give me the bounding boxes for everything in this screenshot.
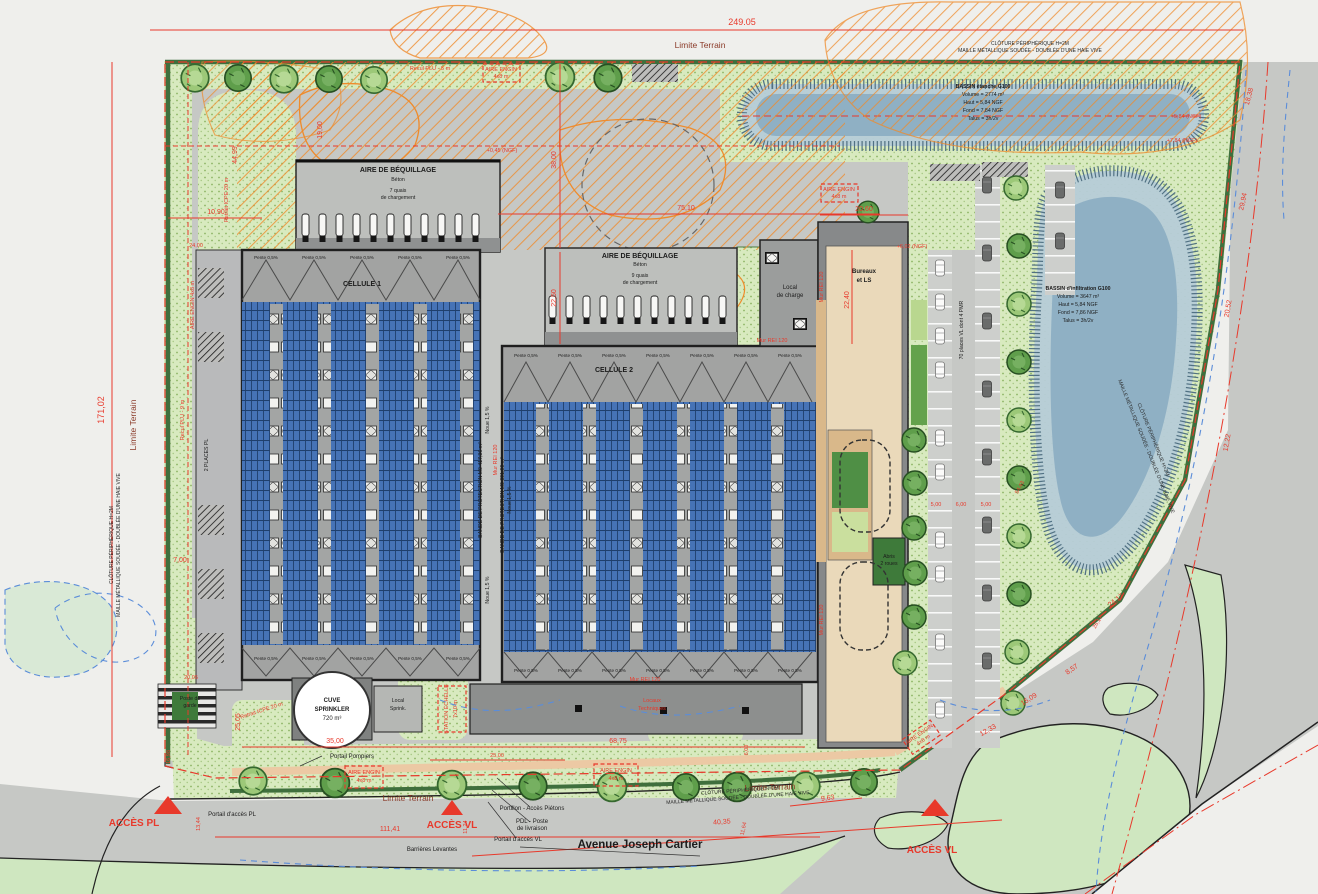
dim-20-05: 20,05 xyxy=(184,675,198,681)
aire-engin-l2: 4x8 m xyxy=(832,194,847,200)
pente: Pente 0,5% xyxy=(778,668,802,673)
cloture-top-l1: CLÔTURE PÉRIPHÉRIQUE H=2M xyxy=(991,40,1069,47)
west-dock-pad-2 xyxy=(198,332,224,362)
hatch-pad-n2 xyxy=(982,162,1028,177)
dock-door xyxy=(302,214,309,242)
cellule-1-walkway xyxy=(270,304,283,644)
aire-beq-2-title: AIRE DE BÉQUILLAGE xyxy=(602,251,679,260)
cloture-left-l1: CLÔTURE PÉRIPHÉRIQUE H=2M xyxy=(108,506,115,584)
bande-protection-2: BANDE DE PROTECTION M0 391,00 m² xyxy=(500,457,506,553)
car-icon xyxy=(983,313,992,329)
avenue-label: Avenue Joseph Cartier xyxy=(578,839,703,851)
pente: Pente 0,5% xyxy=(302,656,326,661)
skylight-icon xyxy=(793,318,807,330)
dock-door xyxy=(685,296,692,324)
west-dock-pad-3 xyxy=(198,505,224,535)
dock-door xyxy=(438,214,445,242)
mur-rei-2: Mur REI 120 xyxy=(819,605,825,636)
pente: Pente 0,5% xyxy=(514,353,538,358)
dim-44-99: 44,99 xyxy=(232,146,239,164)
abris-l1: Abris xyxy=(883,554,895,560)
car-icon xyxy=(936,634,945,650)
dock-door xyxy=(617,296,624,324)
pente: Pente 0,5% xyxy=(514,668,538,673)
bassin-right-line: Volume = 3647 m³ xyxy=(1057,294,1100,300)
aire-beq-1-title: AIRE DE BÉQUILLAGE xyxy=(360,165,437,174)
dim-22-40: 22,40 xyxy=(844,291,851,309)
sprink-l2: Sprink. xyxy=(390,706,406,712)
cellule-1-walkway xyxy=(318,304,331,644)
dim-111-41: 111,41 xyxy=(380,826,400,833)
noue-3: Noue 1,5 % xyxy=(507,486,513,513)
dock-door xyxy=(668,296,675,324)
car-icon xyxy=(983,381,992,397)
tree-icon xyxy=(893,651,917,675)
tree-icon xyxy=(902,605,926,629)
west-dock-lane xyxy=(196,250,242,690)
cellule-2-walkway xyxy=(583,404,596,650)
pente: Pente 0,5% xyxy=(446,656,470,661)
planter-light xyxy=(911,300,927,340)
ngf-584: +5,84 (NGF) xyxy=(1171,114,1202,120)
aire-beq-2-quais: 9 quais xyxy=(632,273,649,279)
dim-35-00: 35,00 xyxy=(326,738,344,745)
pente: Pente 0,5% xyxy=(254,255,278,260)
cellule-2 xyxy=(502,346,818,682)
portillon: Portillon - Accès Piétons xyxy=(500,806,565,812)
site-plan-canvas: 249.05 171,02 111,41 75,10 38,00 20,60 1… xyxy=(0,0,1318,894)
tree-icon xyxy=(903,471,927,495)
portail-vl: Portail d'accès VL xyxy=(494,837,542,843)
dock-door xyxy=(651,296,658,324)
aire-engin-l2: 4x8 m xyxy=(494,74,509,80)
car-icon xyxy=(983,585,992,601)
tree-icon xyxy=(225,65,251,91)
retrait-icpe-top: Retrait ICPE 20 m xyxy=(224,177,230,222)
west-dock-pad-4 xyxy=(198,569,224,599)
dock-door xyxy=(370,214,377,242)
car-icon xyxy=(936,430,945,446)
bassin-right-line: Haut = 5,84 NGF xyxy=(1058,302,1097,308)
car-icon xyxy=(936,362,945,378)
aire-engin-west: AIRE ENGIN 4x8 m xyxy=(190,280,196,329)
pdl-l2: de livraison xyxy=(517,826,547,832)
station-echelle-l1: STATION ÉCHELLE xyxy=(443,684,450,734)
abris-l2: 2 roues xyxy=(880,561,898,567)
cellule-1-walkway xyxy=(460,304,473,644)
aire-engin-l2: 4x8 m xyxy=(609,776,624,782)
cellule-2-label: CELLULE 2 xyxy=(595,367,633,374)
tree-icon xyxy=(902,516,926,540)
portail-pompiers: Portail Pompiers xyxy=(330,754,374,760)
pente: Pente 0,5% xyxy=(734,668,758,673)
cuve-l3: 720 m³ xyxy=(323,716,342,722)
acces-vl-label: ACCÈS VL xyxy=(907,843,958,856)
tree-icon xyxy=(1007,582,1031,606)
limite-terrain-top: Limite Terrain xyxy=(675,40,726,50)
car-icon xyxy=(936,260,945,276)
west-dock-pad-5 xyxy=(198,633,224,663)
ngf-784: +7,84 (NGF) xyxy=(1167,138,1198,144)
pente: Pente 0,5% xyxy=(690,353,714,358)
tree-icon xyxy=(239,767,267,795)
dim-75-10: 75,10 xyxy=(677,205,695,212)
car-icon xyxy=(983,177,992,193)
dim-13-44: 13,44 xyxy=(196,817,202,831)
dock-door xyxy=(421,214,428,242)
tree-icon xyxy=(1007,524,1031,548)
dock-door xyxy=(319,214,326,242)
dim-6-00-b: 6,00 xyxy=(956,502,967,508)
aire-engin-l2: 4x8 m xyxy=(357,778,372,784)
tree-icon xyxy=(270,65,298,93)
dock-door xyxy=(387,214,394,242)
dock-door xyxy=(353,214,360,242)
bureaux-patio-green-dark xyxy=(832,452,868,508)
pente: Pente 0,5% xyxy=(446,255,470,260)
aire-beq-2-charg: de chargement xyxy=(623,280,658,286)
dim-16-98: 16,98 xyxy=(166,750,172,764)
pente: Pente 0,5% xyxy=(734,353,758,358)
dim-7-00: 7,00 xyxy=(173,557,187,564)
cellule-2-walkway xyxy=(536,404,549,650)
aire-beq-1-quais: 7 quais xyxy=(390,188,407,194)
bureaux-wood-strip xyxy=(816,300,826,562)
dock-door xyxy=(455,214,462,242)
aire-engin-l1: AIRE ENGIN xyxy=(823,187,855,193)
tree-icon xyxy=(903,561,927,585)
places-pl: 2 PLACES PL xyxy=(204,439,210,472)
stall-col-a-lines xyxy=(928,250,952,748)
pente: Pente 0,5% xyxy=(350,255,374,260)
locaux-tech-l2: Techniques xyxy=(638,706,666,712)
pente: Pente 0,5% xyxy=(602,353,626,358)
dim-249-05: 249.05 xyxy=(728,17,756,27)
aire-engin-l1: AIRE ENGIN xyxy=(348,770,380,776)
pente: Pente 0,5% xyxy=(398,255,422,260)
cloture-top-l2: MAILLE MÉTALLIQUE SOUDÉE - DOUBLÉE D'UNE… xyxy=(958,47,1102,54)
cellule-2-walkway xyxy=(677,404,690,650)
sprink-l1: Local xyxy=(392,698,404,704)
dim-171-02: 171,02 xyxy=(96,396,106,424)
dock-door xyxy=(472,214,479,242)
tree-icon xyxy=(519,772,547,800)
pente: Pente 0,5% xyxy=(254,656,278,661)
cellule-2-walkway xyxy=(724,404,737,650)
dock-door xyxy=(404,214,411,242)
aire-beq-1-charg: de chargement xyxy=(381,195,416,201)
pente: Pente 0,5% xyxy=(646,668,670,673)
dim-22-50: 22,50 xyxy=(551,289,558,307)
dim-24-00: 24,00 xyxy=(189,243,203,249)
ngf-045: +0,45 (NGF) xyxy=(487,148,518,154)
local-charge-l1: Local xyxy=(783,285,797,291)
acces-vl-label-small: ACCÈS VL xyxy=(427,818,478,831)
dock2-green-strip xyxy=(737,247,760,346)
dim-19-00: 19,00 xyxy=(317,121,324,139)
noue-1: Noue 1,5 % xyxy=(485,406,491,433)
locaux-sq xyxy=(575,705,582,712)
dock-door xyxy=(634,296,641,324)
dock-door xyxy=(702,296,709,324)
pente: Pente 0,5% xyxy=(778,353,802,358)
tree-icon xyxy=(361,67,387,93)
tree-icon xyxy=(316,66,342,92)
dim-5-00-b: 5,00 xyxy=(981,502,992,508)
locaux-sq xyxy=(742,707,749,714)
tree-icon xyxy=(1007,408,1031,432)
tree-icon xyxy=(594,64,622,92)
tree-icon xyxy=(1007,234,1031,258)
dim-40-35: 40,35 xyxy=(713,818,731,826)
dock-door xyxy=(719,296,726,324)
bassin-right-line: Talus = 3h/2v xyxy=(1063,318,1094,324)
mur-rei-4: Mur REI 120 xyxy=(630,677,661,683)
tree-icon xyxy=(851,769,877,795)
poste-garde-l2: garde xyxy=(183,703,196,709)
noue-2: Noue 1,5 % xyxy=(485,576,491,603)
pente: Pente 0,5% xyxy=(302,255,326,260)
car-icon xyxy=(983,245,992,261)
aire-engin-l1: AIRE ENGIN xyxy=(485,67,517,73)
dim-68-75: 68,75 xyxy=(609,738,627,745)
car-icon xyxy=(1056,182,1065,198)
pente: Pente 0,5% xyxy=(558,353,582,358)
car-icon xyxy=(936,294,945,310)
dim-38-00: 38,00 xyxy=(551,151,558,169)
hatch-pad-top xyxy=(632,64,678,82)
cellule-1-label: CELLULE 1 xyxy=(343,281,381,288)
dock-door xyxy=(336,214,343,242)
dim-10-90: 10,90 xyxy=(207,209,225,216)
car-icon xyxy=(983,449,992,465)
apron-2-band xyxy=(545,332,737,346)
car-icon xyxy=(936,702,945,718)
tree-icon xyxy=(1007,350,1031,374)
cellule-2-walkway xyxy=(771,404,784,650)
bassin-top-line: Talus = 3h/2v xyxy=(968,116,999,122)
bassin-top-line: Haut = 5,84 NGF xyxy=(963,100,1002,106)
bureaux-l1: Bureaux xyxy=(852,269,877,275)
recul-plu-5: Recul PLU - 5 m xyxy=(410,66,451,72)
skylight-icon xyxy=(765,252,779,264)
local-charge-l2: de charge xyxy=(777,293,804,299)
bande-protection-1: BANDE DE PROTECTION M0 417,36 m² xyxy=(478,442,484,538)
mur-rei-5: Mur REI 120 xyxy=(493,445,499,476)
limite-terrain-bottom2: Limite Terrain xyxy=(383,793,434,803)
cloture-left-l2: MAILLE MÉTALLIQUE SOUDÉE - DOUBLÉE D'UNE… xyxy=(115,473,122,617)
pdl-l1: PDL - Poste xyxy=(516,819,549,825)
cuve-l1: CUVE xyxy=(324,698,341,704)
aire-beq-1-beton: Béton xyxy=(391,177,405,183)
cellule-1-walkway xyxy=(414,304,427,644)
barrieres: Barrières Levantes xyxy=(407,847,457,853)
tree-icon xyxy=(1005,640,1029,664)
cellule-1-walkway xyxy=(366,304,379,644)
portail-pl: Portail d'accès PL xyxy=(208,812,256,818)
dim-6-00: 6,00 xyxy=(744,745,750,756)
dock-door xyxy=(583,296,590,324)
poste-garde-l1: Poste de xyxy=(180,696,201,702)
locaux-tech-l1: Locaux xyxy=(643,698,661,704)
ngf-602: +6,02 (NGF) xyxy=(897,244,928,250)
car-icon xyxy=(1056,233,1065,249)
tree-icon xyxy=(181,64,209,92)
dock-door xyxy=(566,296,573,324)
acces-pl-label: ACCÈS PL xyxy=(109,816,160,829)
pente: Pente 0,5% xyxy=(398,656,422,661)
car-icon xyxy=(936,464,945,480)
pente: Pente 0,5% xyxy=(558,668,582,673)
tree-icon xyxy=(673,774,699,800)
cellule-1 xyxy=(242,250,480,680)
dim-5-00-a: 5,00 xyxy=(931,502,942,508)
tree-icon xyxy=(1007,292,1031,316)
mur-rei-1: Mur REI 120 xyxy=(819,272,825,303)
car-icon xyxy=(983,517,992,533)
bassin-right-title: BASSIN d'infiltration G100 xyxy=(1046,286,1111,292)
cellule-2-walkway xyxy=(630,404,643,650)
pente: Pente 0,5% xyxy=(690,668,714,673)
car-icon xyxy=(983,653,992,669)
car-icon xyxy=(936,532,945,548)
bureaux-l2: et LS xyxy=(857,278,872,284)
tree-icon xyxy=(902,428,926,452)
dock-door xyxy=(600,296,607,324)
car-icon xyxy=(936,566,945,582)
pente: Pente 0,5% xyxy=(350,656,374,661)
recul-plu-9: Recul PLU - 9 m xyxy=(180,399,186,440)
hatch-pad-n1 xyxy=(930,164,980,181)
tree-icon xyxy=(1004,176,1028,200)
cuve-l2: SPRINKLER xyxy=(315,707,350,713)
places-70: 70 places VL dont 4 PMR xyxy=(959,300,965,359)
bassin-right-line: Fond = 7,86 NGF xyxy=(1058,310,1098,316)
west-dock-pad-1 xyxy=(198,268,224,298)
aire-engin-l1: AIRE ENGIN xyxy=(600,768,632,774)
station-echelle-l2: 7x10 m xyxy=(453,700,459,718)
bassin-top-title: BASSIN étanche G100 xyxy=(956,84,1011,90)
limite-terrain-left: Limite Terrain xyxy=(128,399,138,450)
aire-beq-2-beton: Béton xyxy=(633,262,647,268)
bassin-top-line: Volume = 2774 m³ xyxy=(962,92,1005,98)
bassin-top-line: Fond = 7,84 NGF xyxy=(963,108,1003,114)
planter-dark xyxy=(911,345,927,425)
pente: Pente 0,5% xyxy=(602,668,626,673)
mur-rei-3: Mur REI 120 xyxy=(757,338,788,344)
dim-25-00: 25,00 xyxy=(490,753,504,759)
cellule-2-panels xyxy=(504,402,816,652)
dim-20-60: 20,60 xyxy=(855,206,873,213)
car-icon xyxy=(936,328,945,344)
pente: Pente 0,5% xyxy=(646,353,670,358)
